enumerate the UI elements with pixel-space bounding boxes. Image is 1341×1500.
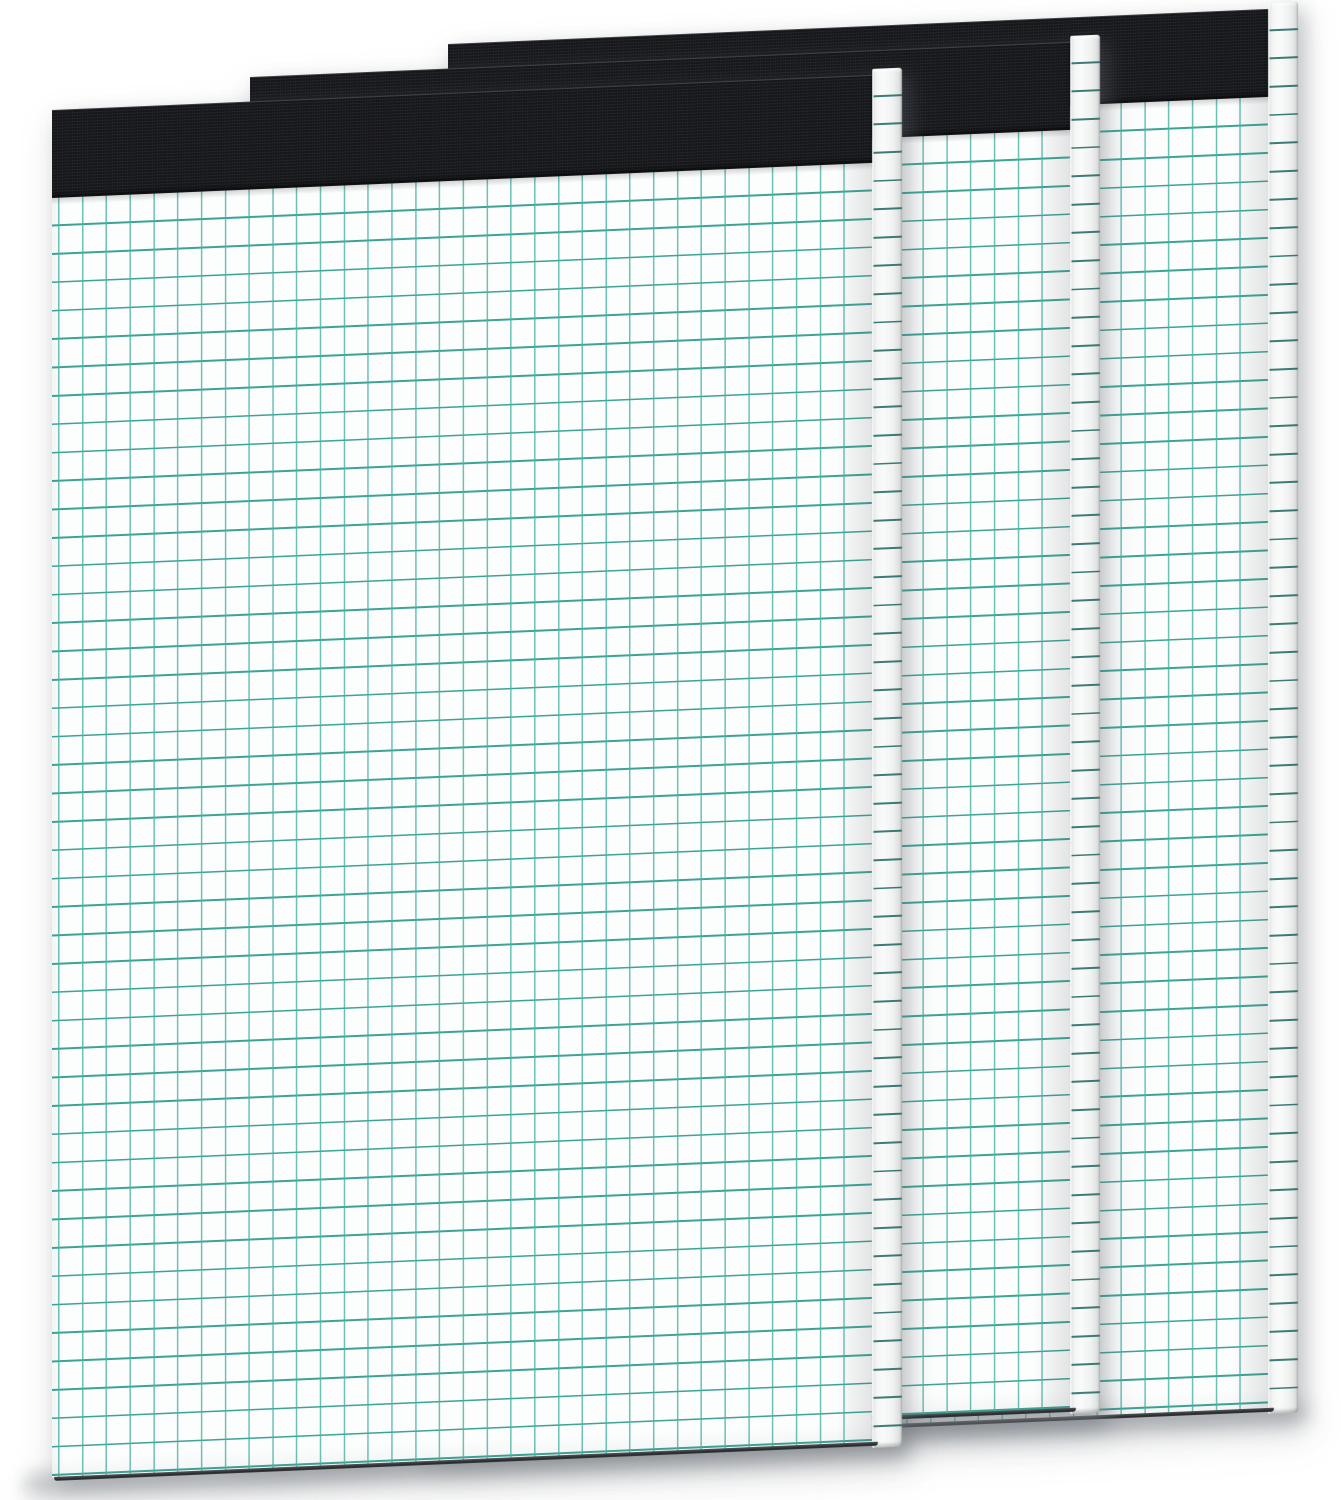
- page-stack-edge: [872, 68, 902, 1448]
- product-photo-scene: [0, 0, 1341, 1500]
- paper-shading: [52, 163, 872, 1478]
- notepad-front: [52, 74, 902, 1478]
- page-stack-edge: [1070, 35, 1100, 1414]
- grid-paper: [52, 163, 872, 1478]
- page-stack-edge: [1268, 2, 1298, 1414]
